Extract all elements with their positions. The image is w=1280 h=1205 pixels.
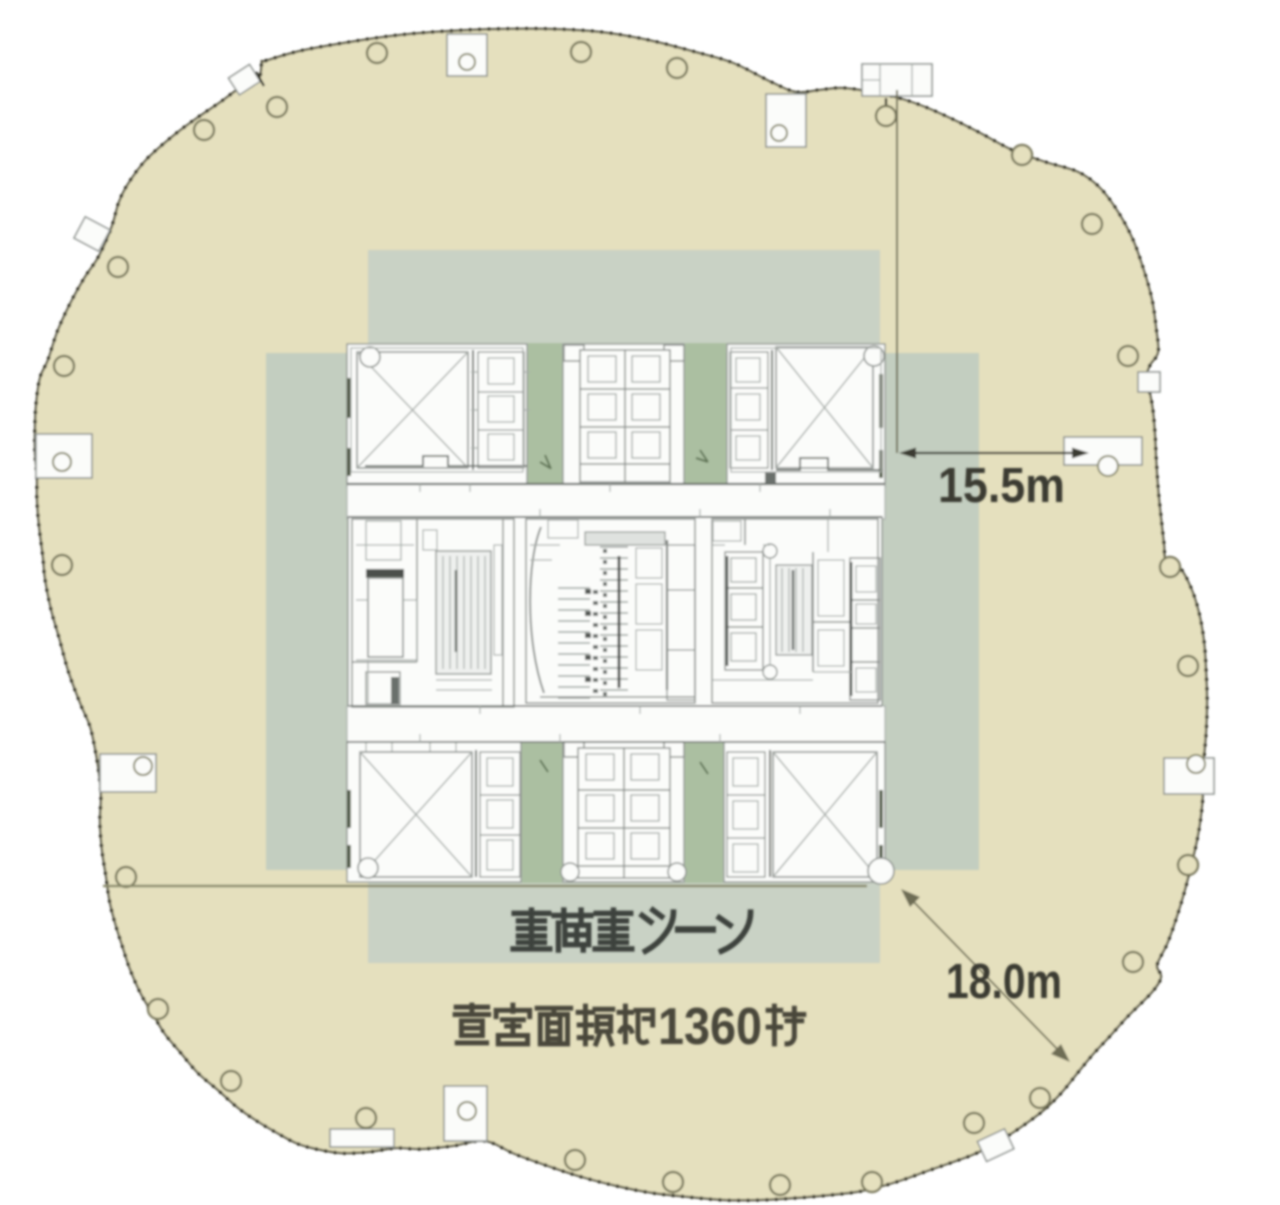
svg-text:18.0m: 18.0m [946,955,1062,1009]
svg-text:1360: 1360 [658,998,762,1056]
svg-text:15.5m: 15.5m [938,459,1065,513]
